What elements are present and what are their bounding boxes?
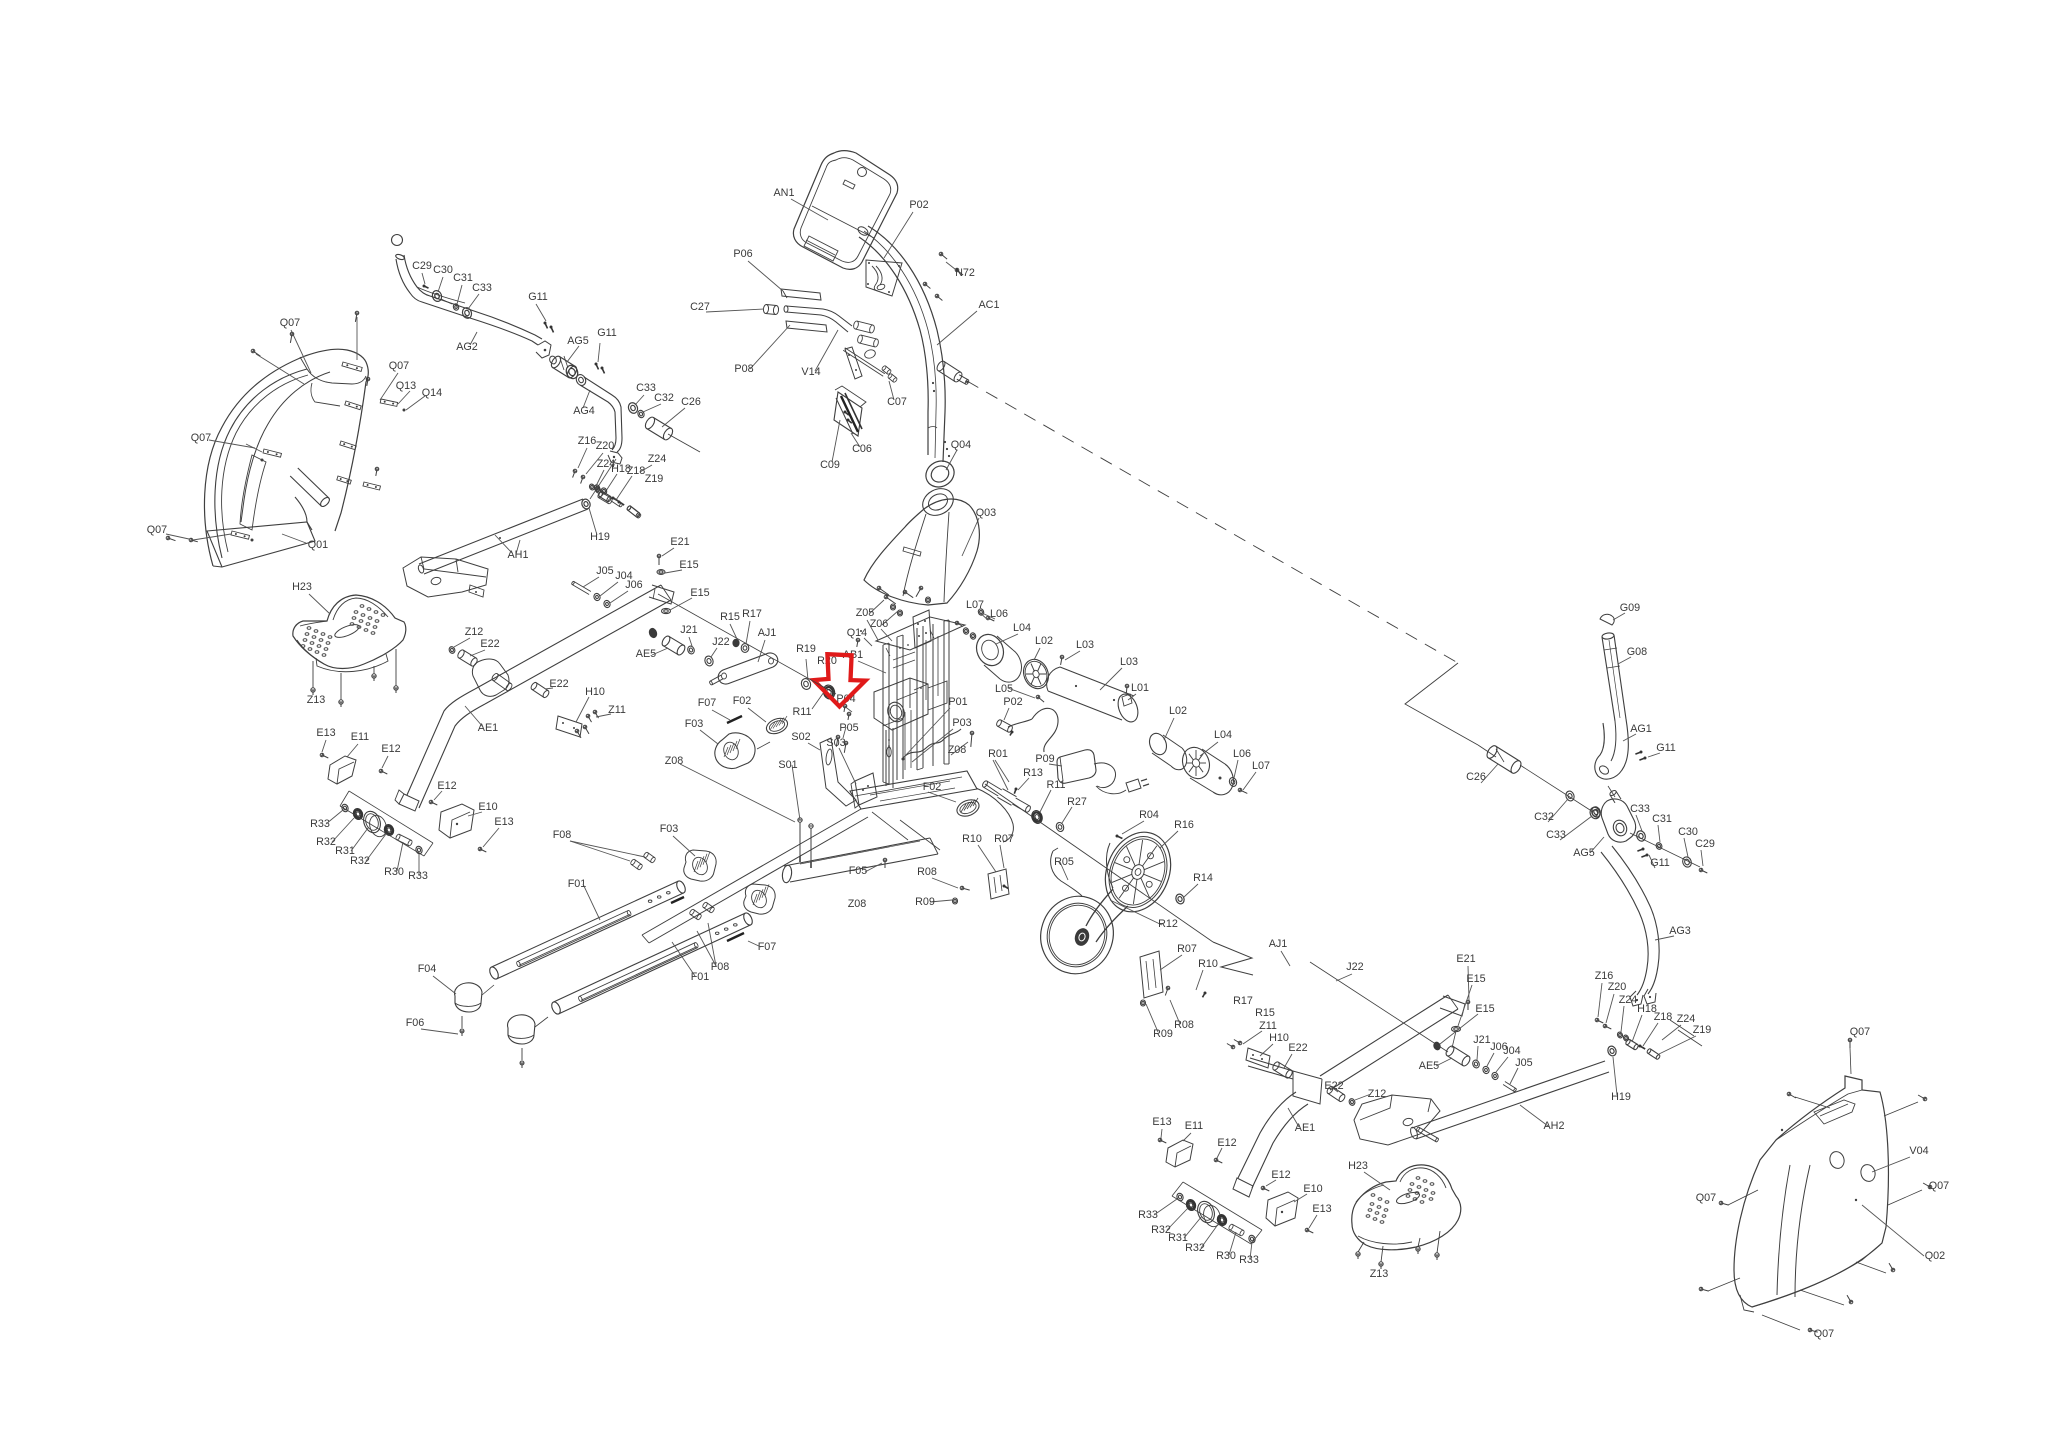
svg-text:R01: R01 xyxy=(988,748,1008,760)
svg-text:AE5: AE5 xyxy=(636,648,656,660)
svg-text:J06: J06 xyxy=(625,579,642,591)
svg-text:Z16: Z16 xyxy=(578,435,597,447)
svg-text:Z06: Z06 xyxy=(870,618,889,630)
svg-text:E11: E11 xyxy=(351,731,369,743)
svg-text:E11: E11 xyxy=(1185,1120,1203,1132)
svg-text:C09: C09 xyxy=(820,459,840,471)
svg-text:E12: E12 xyxy=(1271,1169,1290,1181)
svg-text:F02: F02 xyxy=(923,781,942,793)
svg-text:Z18: Z18 xyxy=(1654,1011,1673,1023)
svg-text:E22: E22 xyxy=(1324,1080,1343,1092)
svg-text:J22: J22 xyxy=(1346,961,1363,973)
svg-text:E15: E15 xyxy=(1466,973,1485,985)
svg-text:R27: R27 xyxy=(1067,796,1087,808)
svg-text:F08: F08 xyxy=(711,961,730,973)
svg-text:Q13: Q13 xyxy=(396,380,416,392)
svg-text:Q14: Q14 xyxy=(422,387,442,399)
svg-text:C31: C31 xyxy=(453,272,473,284)
svg-text:L07: L07 xyxy=(966,599,984,611)
svg-text:Z08: Z08 xyxy=(665,755,684,767)
svg-text:G11: G11 xyxy=(528,291,548,303)
svg-text:E15: E15 xyxy=(679,559,698,571)
svg-text:R11: R11 xyxy=(792,706,811,718)
svg-text:Q04: Q04 xyxy=(951,439,971,451)
svg-text:Q02: Q02 xyxy=(1925,1250,1945,1262)
svg-text:C33: C33 xyxy=(472,282,492,294)
svg-text:C26: C26 xyxy=(1466,771,1486,783)
svg-text:J05: J05 xyxy=(596,565,613,577)
svg-text:Z08: Z08 xyxy=(948,744,967,756)
svg-text:AG2: AG2 xyxy=(456,341,478,353)
svg-text:G08: G08 xyxy=(1627,646,1647,658)
svg-text:E22: E22 xyxy=(480,638,499,650)
svg-text:R32: R32 xyxy=(350,855,370,867)
svg-text:H10: H10 xyxy=(585,686,605,698)
svg-text:Q07: Q07 xyxy=(191,432,211,444)
svg-text:R12: R12 xyxy=(1158,918,1178,930)
svg-text:Q07: Q07 xyxy=(1850,1026,1870,1038)
svg-text:E12: E12 xyxy=(1217,1137,1236,1149)
svg-text:E15: E15 xyxy=(1475,1003,1494,1015)
svg-text:F02: F02 xyxy=(733,695,752,707)
svg-text:J04: J04 xyxy=(1503,1045,1520,1057)
svg-text:E12: E12 xyxy=(437,780,456,792)
svg-text:C33: C33 xyxy=(636,382,656,394)
svg-text:Q01: Q01 xyxy=(308,539,328,551)
svg-text:H10: H10 xyxy=(1269,1032,1289,1044)
svg-text:L03: L03 xyxy=(1076,639,1094,651)
svg-text:AH1: AH1 xyxy=(507,549,528,561)
svg-text:AG3: AG3 xyxy=(1669,925,1691,937)
svg-text:E13: E13 xyxy=(1312,1203,1331,1215)
svg-text:S01: S01 xyxy=(778,759,797,771)
svg-text:L02: L02 xyxy=(1169,705,1187,717)
svg-text:Q14: Q14 xyxy=(847,627,867,639)
svg-text:AG4: AG4 xyxy=(573,405,595,417)
svg-text:Z13: Z13 xyxy=(307,694,326,706)
svg-text:F05: F05 xyxy=(849,865,868,877)
svg-text:L01: L01 xyxy=(1131,682,1149,694)
svg-text:Q07: Q07 xyxy=(389,360,409,372)
svg-text:H23: H23 xyxy=(1348,1160,1368,1172)
svg-text:Z11: Z11 xyxy=(1259,1020,1277,1032)
svg-text:F08: F08 xyxy=(553,829,572,841)
svg-text:AJ1: AJ1 xyxy=(758,627,777,639)
svg-text:V14: V14 xyxy=(801,366,820,378)
svg-text:R15: R15 xyxy=(1255,1007,1275,1019)
svg-text:C33: C33 xyxy=(1630,803,1650,815)
svg-text:Q03: Q03 xyxy=(976,507,996,519)
svg-text:G11: G11 xyxy=(1650,857,1670,869)
svg-text:C29: C29 xyxy=(1695,838,1715,850)
svg-text:P02: P02 xyxy=(909,199,928,211)
svg-text:Z20: Z20 xyxy=(596,440,615,452)
svg-text:P05: P05 xyxy=(839,722,858,734)
svg-text:P01: P01 xyxy=(948,696,967,708)
svg-text:E13: E13 xyxy=(1152,1116,1171,1128)
svg-text:C30: C30 xyxy=(1678,826,1698,838)
svg-text:R17: R17 xyxy=(1233,995,1253,1007)
svg-text:J21: J21 xyxy=(1473,1034,1490,1046)
svg-text:E10: E10 xyxy=(478,801,497,813)
svg-text:F03: F03 xyxy=(685,718,704,730)
svg-text:P09: P09 xyxy=(1035,753,1054,765)
svg-text:Z20: Z20 xyxy=(1608,981,1627,993)
svg-text:R09: R09 xyxy=(1153,1028,1173,1040)
svg-text:R10: R10 xyxy=(1198,958,1218,970)
svg-text:AG1: AG1 xyxy=(1630,723,1652,735)
svg-text:L03: L03 xyxy=(1120,656,1138,668)
svg-text:R13: R13 xyxy=(1023,767,1043,779)
svg-text:E21: E21 xyxy=(670,536,689,548)
svg-text:F06: F06 xyxy=(406,1017,425,1029)
svg-text:E13: E13 xyxy=(316,727,335,739)
svg-text:P06: P06 xyxy=(733,248,752,260)
svg-text:E13: E13 xyxy=(494,816,513,828)
svg-text:C26: C26 xyxy=(681,396,701,408)
svg-text:C07: C07 xyxy=(887,396,907,408)
svg-text:C32: C32 xyxy=(654,392,674,404)
svg-text:C31: C31 xyxy=(1652,813,1672,825)
svg-text:R30: R30 xyxy=(1216,1250,1236,1262)
svg-text:H19: H19 xyxy=(1611,1091,1631,1103)
svg-text:J21: J21 xyxy=(680,624,697,636)
svg-text:N72: N72 xyxy=(955,267,975,279)
svg-text:P02: P02 xyxy=(1003,696,1022,708)
svg-text:R11: R11 xyxy=(1046,779,1065,791)
svg-text:Z13: Z13 xyxy=(1370,1268,1389,1280)
svg-text:H23: H23 xyxy=(292,581,312,593)
svg-text:AE1: AE1 xyxy=(478,722,498,734)
svg-text:AC1: AC1 xyxy=(978,299,999,311)
svg-text:Q07: Q07 xyxy=(280,317,300,329)
svg-text:J22: J22 xyxy=(712,636,729,648)
svg-text:C29: C29 xyxy=(412,260,432,272)
svg-text:R07: R07 xyxy=(1177,943,1197,955)
svg-text:H19: H19 xyxy=(590,531,610,543)
svg-text:F03: F03 xyxy=(660,823,679,835)
svg-text:F04: F04 xyxy=(418,963,437,975)
svg-text:R15: R15 xyxy=(720,611,740,623)
svg-text:Z12: Z12 xyxy=(465,626,484,638)
svg-text:C30: C30 xyxy=(433,264,453,276)
svg-text:AJ1: AJ1 xyxy=(1269,938,1288,950)
svg-text:R30: R30 xyxy=(384,866,404,878)
svg-text:E15: E15 xyxy=(690,587,709,599)
svg-text:R08: R08 xyxy=(1174,1019,1194,1031)
svg-text:AH2: AH2 xyxy=(1543,1120,1564,1132)
svg-text:R33: R33 xyxy=(1138,1209,1158,1221)
svg-text:R04: R04 xyxy=(1139,809,1159,821)
svg-text:J05: J05 xyxy=(1515,1057,1532,1069)
svg-text:F07: F07 xyxy=(698,697,717,709)
svg-text:G11: G11 xyxy=(1656,742,1676,754)
svg-text:Z24: Z24 xyxy=(648,453,667,465)
svg-text:R33: R33 xyxy=(1239,1254,1259,1266)
svg-text:Z24: Z24 xyxy=(1619,994,1638,1006)
svg-text:S03: S03 xyxy=(826,737,845,749)
svg-text:R32: R32 xyxy=(1185,1242,1205,1254)
svg-text:R33: R33 xyxy=(310,818,330,830)
svg-text:E22: E22 xyxy=(1288,1042,1307,1054)
svg-text:L04: L04 xyxy=(1214,729,1232,741)
svg-text:C32: C32 xyxy=(1534,811,1554,823)
svg-text:R10: R10 xyxy=(962,833,982,845)
svg-text:R09: R09 xyxy=(915,896,935,908)
svg-text:L02: L02 xyxy=(1035,635,1053,647)
svg-text:R17: R17 xyxy=(742,608,762,620)
svg-text:R33: R33 xyxy=(408,870,428,882)
svg-text:L04: L04 xyxy=(1013,622,1031,634)
svg-text:E21: E21 xyxy=(1456,953,1475,965)
svg-text:P03: P03 xyxy=(952,717,971,729)
svg-text:S02: S02 xyxy=(791,731,810,743)
svg-text:Q07: Q07 xyxy=(1929,1180,1949,1192)
svg-text:AE1: AE1 xyxy=(1295,1122,1315,1134)
svg-text:E10: E10 xyxy=(1303,1183,1322,1195)
svg-text:C33: C33 xyxy=(1546,829,1566,841)
svg-text:L06: L06 xyxy=(1233,748,1251,760)
svg-text:R14: R14 xyxy=(1193,872,1213,884)
svg-text:R08: R08 xyxy=(917,866,937,878)
svg-text:F01: F01 xyxy=(691,971,710,983)
svg-text:G11: G11 xyxy=(597,327,617,339)
svg-text:L07: L07 xyxy=(1252,760,1270,772)
svg-text:AN1: AN1 xyxy=(773,187,794,199)
svg-text:C27: C27 xyxy=(690,301,710,313)
svg-text:Z08: Z08 xyxy=(848,898,867,910)
svg-text:R32: R32 xyxy=(316,836,336,848)
svg-text:Z19: Z19 xyxy=(645,473,664,485)
svg-text:C06: C06 xyxy=(852,443,872,455)
svg-text:R07: R07 xyxy=(994,833,1014,845)
svg-text:Q07: Q07 xyxy=(147,524,167,536)
svg-text:P08: P08 xyxy=(734,363,753,375)
svg-text:R19: R19 xyxy=(796,643,816,655)
svg-text:Q07: Q07 xyxy=(1696,1192,1716,1204)
svg-text:F01: F01 xyxy=(568,878,587,890)
svg-text:Z19: Z19 xyxy=(1693,1024,1712,1036)
svg-text:AG5: AG5 xyxy=(567,335,589,347)
svg-text:R16: R16 xyxy=(1174,819,1194,831)
svg-text:E12: E12 xyxy=(381,743,400,755)
svg-text:G09: G09 xyxy=(1620,602,1640,614)
svg-text:Q07: Q07 xyxy=(1814,1328,1834,1340)
svg-text:AG5: AG5 xyxy=(1573,847,1595,859)
svg-text:R05: R05 xyxy=(1054,856,1074,868)
svg-text:V04: V04 xyxy=(1909,1145,1928,1157)
